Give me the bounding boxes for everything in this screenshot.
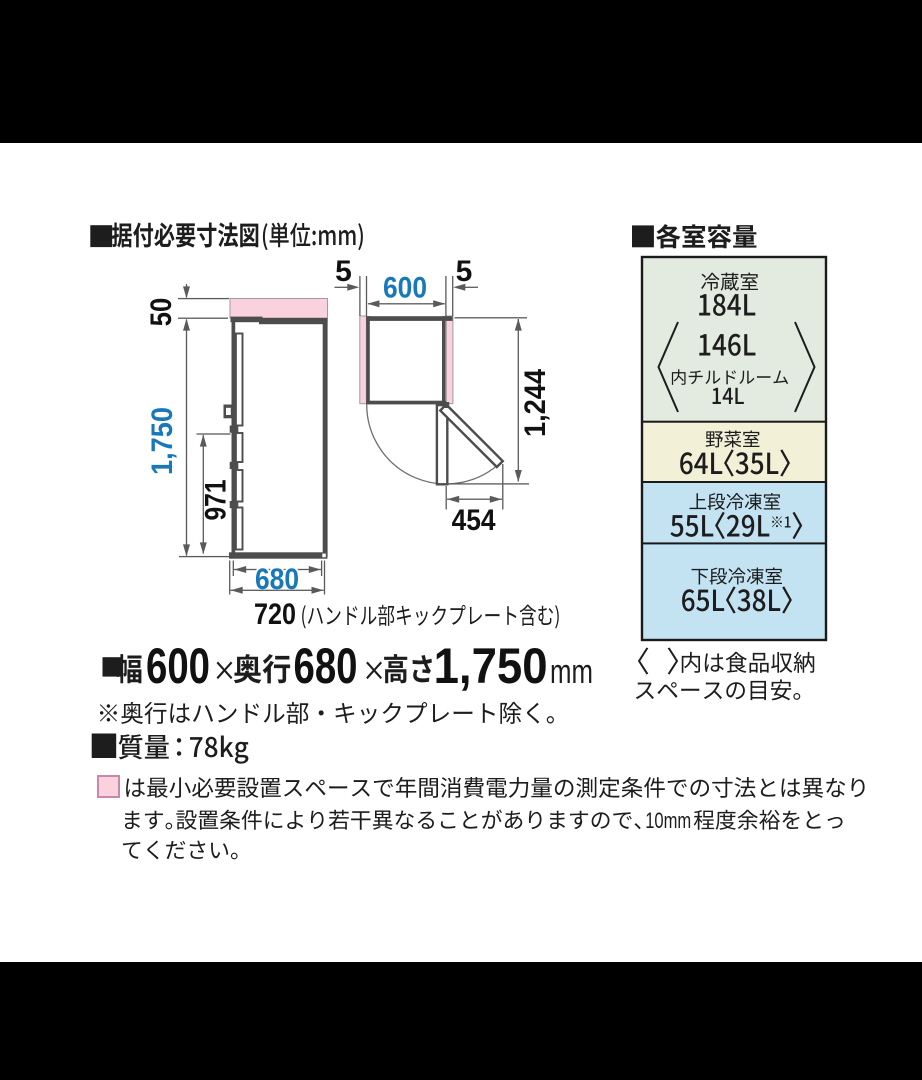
svg-text:50: 50 [145, 298, 178, 327]
svg-text:1,750: 1,750 [146, 407, 179, 475]
svg-text:5: 5 [456, 255, 473, 288]
svg-text:600: 600 [146, 638, 210, 694]
svg-text:971: 971 [200, 480, 233, 521]
svg-text:454: 454 [452, 504, 496, 537]
svg-text:720: 720 [254, 598, 296, 631]
svg-text:10mm: 10mm [645, 808, 691, 833]
svg-text:1,244: 1,244 [519, 369, 552, 437]
svg-text:5: 5 [335, 255, 352, 288]
svg-text:mm: mm [550, 653, 593, 691]
svg-text:680: 680 [255, 563, 299, 596]
svg-text:1,750: 1,750 [434, 638, 548, 694]
svg-text:680: 680 [294, 638, 358, 694]
svg-text:600: 600 [383, 272, 427, 305]
